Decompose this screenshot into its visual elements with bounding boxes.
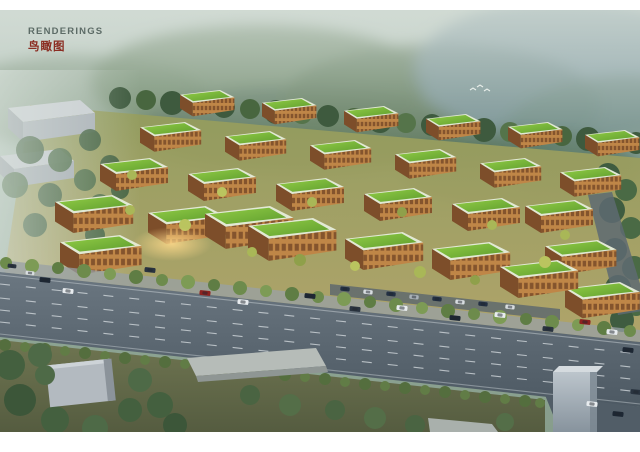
rendering-page: RENDERINGS 鸟瞰图 bbox=[0, 0, 640, 452]
renderings-title-en: RENDERINGS bbox=[28, 26, 103, 37]
bottom-right-tower bbox=[553, 366, 603, 432]
bottom-left-warehouse bbox=[46, 359, 116, 408]
renderings-title-zh: 鸟瞰图 bbox=[28, 38, 66, 54]
entrance-glow bbox=[132, 227, 212, 261]
aerial-rendering-image bbox=[0, 10, 640, 432]
